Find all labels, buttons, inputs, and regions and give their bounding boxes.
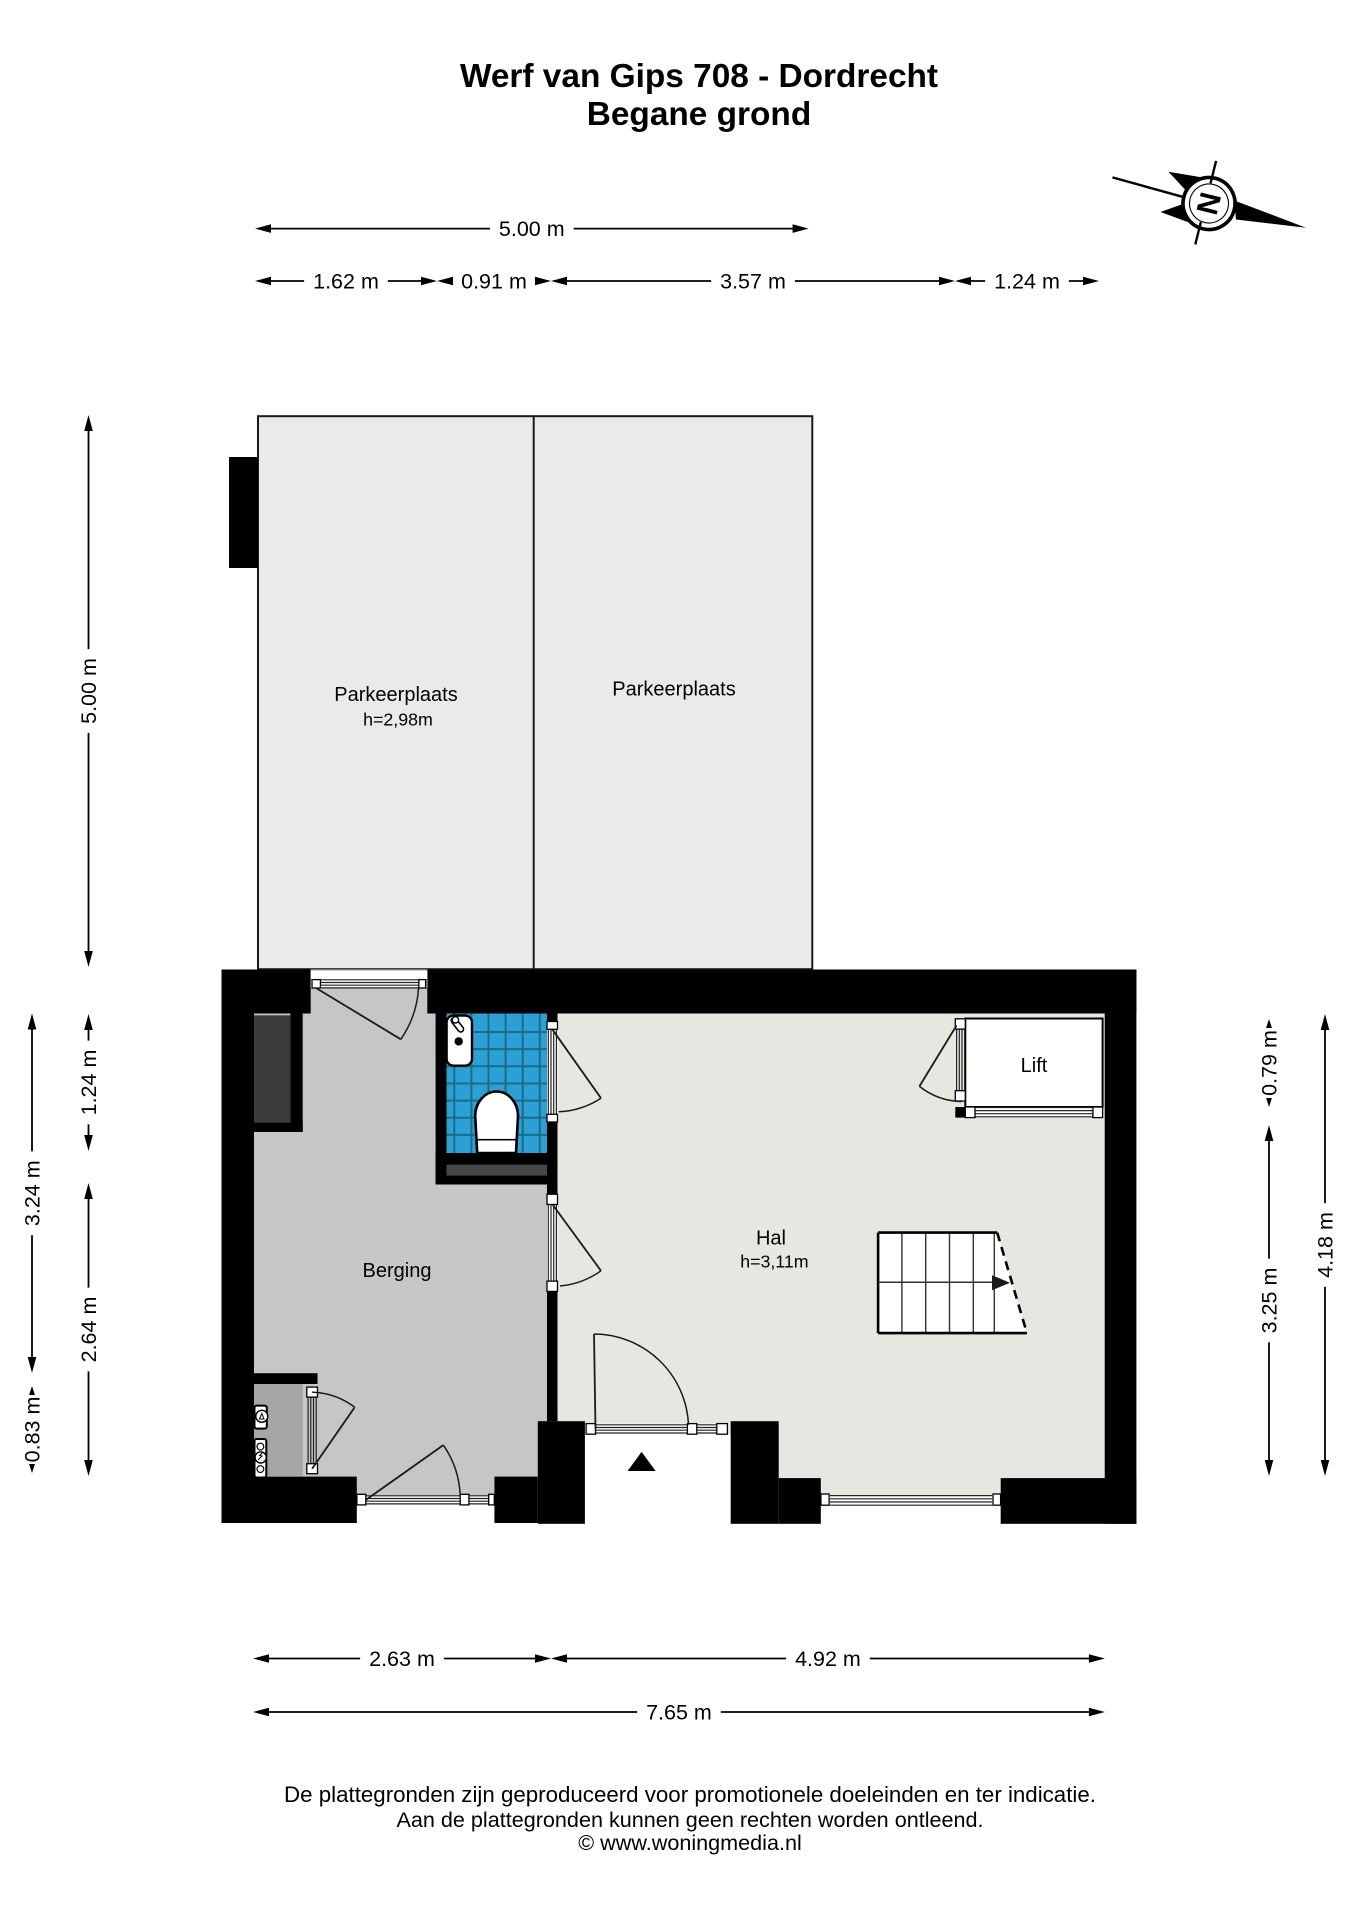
svg-text:Werf van Gips 708 - Dordrecht: Werf van Gips 708 - Dordrecht [460, 58, 938, 95]
svg-text:1.24 m: 1.24 m [77, 1050, 101, 1116]
svg-text:h=2,98m: h=2,98m [363, 710, 433, 730]
svg-text:5.00 m: 5.00 m [499, 217, 565, 241]
svg-text:5.00 m: 5.00 m [77, 658, 101, 724]
svg-text:© www.woningmedia.nl: © www.woningmedia.nl [578, 1830, 802, 1855]
svg-text:Lift: Lift [1021, 1055, 1048, 1077]
svg-text:0.79 m: 0.79 m [1257, 1030, 1281, 1096]
svg-text:Parkeerplaats: Parkeerplaats [612, 679, 735, 701]
svg-text:0.91 m: 0.91 m [461, 269, 527, 293]
svg-text:1.24 m: 1.24 m [994, 269, 1060, 293]
svg-text:2.64 m: 2.64 m [77, 1297, 101, 1363]
svg-text:4.18 m: 4.18 m [1313, 1212, 1337, 1278]
svg-text:3.57 m: 3.57 m [720, 269, 786, 293]
svg-text:Begane grond: Begane grond [587, 96, 811, 133]
svg-text:7.65 m: 7.65 m [646, 1700, 712, 1724]
svg-text:Hal: Hal [756, 1227, 786, 1249]
svg-text:1.62 m: 1.62 m [313, 269, 379, 293]
svg-text:3.24 m: 3.24 m [20, 1160, 44, 1226]
svg-text:h=3,11m: h=3,11m [740, 1252, 808, 1272]
svg-text:0.83 m: 0.83 m [20, 1397, 44, 1463]
svg-text:4.92 m: 4.92 m [795, 1647, 861, 1671]
svg-text:Berging: Berging [363, 1260, 432, 1282]
svg-text:Parkeerplaats: Parkeerplaats [334, 684, 457, 706]
svg-text:2.63 m: 2.63 m [369, 1647, 435, 1671]
svg-text:3.25 m: 3.25 m [1257, 1268, 1281, 1334]
svg-text:De plattegronden zijn geproduc: De plattegronden zijn geproduceerd voor … [284, 1782, 1096, 1807]
svg-text:Aan de plattegronden kunnen ge: Aan de plattegronden kunnen geen rechten… [396, 1807, 983, 1832]
